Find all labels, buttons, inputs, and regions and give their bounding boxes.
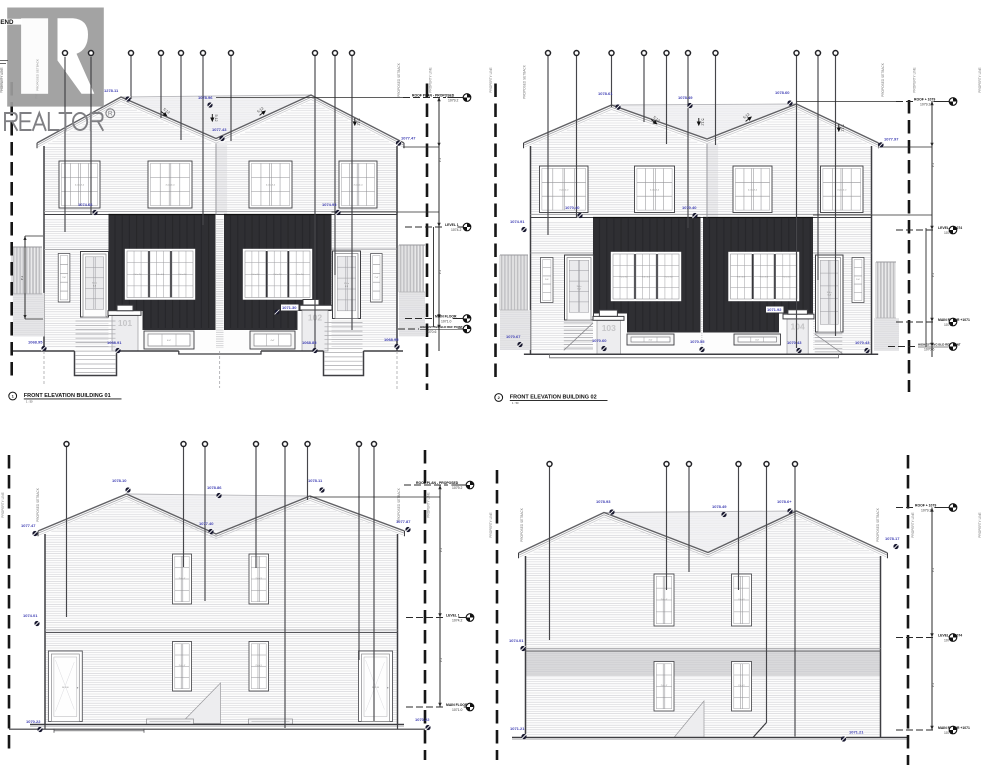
svg-text:9'-0 x 4'-6: 9'-0 x 4'-6 <box>760 276 768 278</box>
svg-text:HIGHEST AVG BLD REF POINT: HIGHEST AVG BLD REF POINT <box>420 325 463 329</box>
svg-text:4'-0 x 4'-0: 4'-0 x 4'-0 <box>266 185 276 187</box>
svg-text:1 : 50: 1 : 50 <box>512 401 519 405</box>
svg-text:LEGEND: LEGEND <box>0 19 14 26</box>
svg-text:9'-0 x 4'-6: 9'-0 x 4'-6 <box>134 274 142 276</box>
svg-text:PROPOSED SETBACK: PROPOSED SETBACK <box>36 59 40 91</box>
svg-text:2'x6': 2'x6' <box>375 277 379 279</box>
svg-text:4'x2': 4'x2' <box>167 340 172 342</box>
svg-text:PROPOSED SETBACK: PROPOSED SETBACK <box>520 507 524 542</box>
svg-text:1071.0: 1071.0 <box>441 320 451 324</box>
svg-text:PROPOSED SETBACK: PROPOSED SETBACK <box>881 62 885 97</box>
svg-text:1078.11: 1078.11 <box>308 478 323 483</box>
svg-text:1 : 50: 1 : 50 <box>26 400 33 404</box>
svg-text:9'-0 x 4'-6: 9'-0 x 4'-6 <box>619 276 627 278</box>
svg-text:1079.2: 1079.2 <box>452 486 462 490</box>
svg-text:1070.67: 1070.67 <box>506 334 521 339</box>
svg-text:ROOF PLAN - PROPOSED: ROOF PLAN - PROPOSED <box>412 93 455 97</box>
svg-text:1070.22: 1070.22 <box>415 717 430 722</box>
svg-text:2'-6 x 5': 2'-6 x 5' <box>256 578 263 580</box>
svg-text:1077.47: 1077.47 <box>401 136 416 141</box>
svg-text:9'-1: 9'-1 <box>931 162 935 167</box>
svg-text:1074.66: 1074.66 <box>78 202 93 207</box>
svg-text:9'-1: 9'-1 <box>439 547 443 552</box>
svg-text:LEVEL 1: LEVEL 1 <box>445 223 459 227</box>
svg-text:3'-0 x: 3'-0 x <box>577 286 582 288</box>
svg-text:1077.87: 1077.87 <box>396 519 411 524</box>
svg-text:2'-6 x 5': 2'-6 x 5' <box>179 665 186 667</box>
svg-text:1078.10: 1078.10 <box>112 478 127 483</box>
svg-text:2'x6': 2'x6' <box>545 279 549 281</box>
svg-text:9'-1: 9'-1 <box>438 157 442 162</box>
svg-text:ROOF + 1079: ROOF + 1079 <box>915 503 936 507</box>
svg-text:2'-6 x 5': 2'-6 x 5' <box>661 685 668 687</box>
svg-text:2'-6 x 5': 2'-6 x 5' <box>256 665 263 667</box>
svg-text:PROPERTY LINE: PROPERTY LINE <box>489 512 493 537</box>
svg-text:1074.2: 1074.2 <box>451 228 461 232</box>
svg-text:1079.2: 1079.2 <box>920 103 930 107</box>
svg-text:MAIN FLOOR: MAIN FLOOR <box>446 703 468 707</box>
svg-text:LEVEL 1: LEVEL 1 <box>446 613 460 617</box>
svg-text:1070.22: 1070.22 <box>26 719 41 724</box>
svg-text:4'-0 x 4'-0: 4'-0 x 4'-0 <box>748 189 758 191</box>
svg-text:1078.49: 1078.49 <box>678 95 693 100</box>
svg-text:103: 103 <box>602 323 616 333</box>
svg-text:1071.30: 1071.30 <box>282 305 297 310</box>
svg-text:4'-0 x 4'-0: 4'-0 x 4'-0 <box>559 189 569 191</box>
svg-text:9'-0 x 4'-6: 9'-0 x 4'-6 <box>782 276 790 278</box>
svg-text:PROPERTY LINE: PROPERTY LINE <box>429 67 433 92</box>
svg-text:9'-0 x 4'-6: 9'-0 x 4'-6 <box>156 274 164 276</box>
svg-text:1071.21: 1071.21 <box>510 726 525 731</box>
svg-text:9'-1: 9'-1 <box>931 567 935 572</box>
svg-text:1079.2: 1079.2 <box>921 509 931 513</box>
svg-text:PROPOSED SETBACK: PROPOSED SETBACK <box>397 487 401 522</box>
svg-text:1071.92: 1071.92 <box>767 307 782 312</box>
svg-text:1070.6: 1070.6 <box>426 330 436 334</box>
svg-text:1068.95: 1068.95 <box>28 340 43 345</box>
svg-text:1278.11: 1278.11 <box>104 88 119 93</box>
svg-text:1078.17: 1078.17 <box>885 536 900 541</box>
svg-text:1068.95: 1068.95 <box>384 337 399 342</box>
svg-text:2'-6 x 5': 2'-6 x 5' <box>738 685 745 687</box>
svg-text:1070.40: 1070.40 <box>682 205 697 210</box>
svg-text:3'-0 x: 3'-0 x <box>92 283 97 285</box>
svg-text:1077.43: 1077.43 <box>212 127 227 132</box>
svg-text:1070.6: 1070.6 <box>924 348 934 352</box>
svg-text:9'-0 x 4'-6: 9'-0 x 4'-6 <box>296 274 304 276</box>
svg-text:9'-0 x 4'-6: 9'-0 x 4'-6 <box>642 276 650 278</box>
svg-text:4'-0 x 4'-0: 4'-0 x 4'-0 <box>650 189 660 191</box>
svg-text:2'-6 x 5': 2'-6 x 5' <box>661 599 668 601</box>
svg-text:1077.40: 1077.40 <box>199 521 214 526</box>
svg-text:4'-0 x 4'-0: 4'-0 x 4'-0 <box>75 185 85 187</box>
svg-text:5:12: 5:12 <box>214 115 218 122</box>
svg-text:1070.60: 1070.60 <box>592 338 607 343</box>
svg-text:FRONT ELEVATION BUILDING 01: FRONT ELEVATION BUILDING 01 <box>24 393 111 399</box>
svg-text:PROPERTY LINE: PROPERTY LINE <box>1 492 5 517</box>
svg-text:1068.91: 1068.91 <box>107 340 122 345</box>
svg-text:9'-1: 9'-1 <box>20 275 24 280</box>
svg-text:4'x2': 4'x2' <box>755 340 760 342</box>
svg-text:2'x6': 2'x6' <box>856 279 860 281</box>
svg-text:5:12: 5:12 <box>701 119 705 126</box>
svg-text:1070.40: 1070.40 <box>565 205 580 210</box>
svg-text:9'-1: 9'-1 <box>931 682 935 687</box>
svg-text:1078.60: 1078.60 <box>775 90 790 95</box>
svg-text:36 X 80: 36 X 80 <box>372 687 380 689</box>
svg-text:PROPOSED SETBACK: PROPOSED SETBACK <box>36 487 40 522</box>
svg-text:1070.55: 1070.55 <box>690 339 705 344</box>
svg-text:4'x2': 4'x2' <box>271 340 276 342</box>
svg-text:1074.2: 1074.2 <box>452 619 462 623</box>
svg-text:PROPERTY LINE: PROPERTY LINE <box>427 492 431 517</box>
svg-text:3'-0 x: 3'-0 x <box>827 292 832 294</box>
svg-text:9'-1: 9'-1 <box>931 272 935 277</box>
svg-text:5:12: 5:12 <box>357 119 361 126</box>
svg-text:9'-0 x 4'-6: 9'-0 x 4'-6 <box>737 276 745 278</box>
svg-text:1068.85: 1068.85 <box>302 340 317 345</box>
svg-text:FRONT ELEVATION BUILDING 02: FRONT ELEVATION BUILDING 02 <box>510 395 597 401</box>
svg-text:ROOF PLAN - PROPOSED: ROOF PLAN - PROPOSED <box>416 481 459 485</box>
svg-text:101: 101 <box>118 318 132 328</box>
svg-text:1078.96: 1078.96 <box>198 95 213 100</box>
svg-text:9'-0 x 4'-6: 9'-0 x 4'-6 <box>664 276 672 278</box>
svg-text:9'-0 x 4'-6: 9'-0 x 4'-6 <box>251 274 259 276</box>
svg-text:1078.61: 1078.61 <box>598 91 613 96</box>
svg-text:1071.21: 1071.21 <box>849 730 864 735</box>
svg-text:1078.93: 1078.93 <box>596 499 611 504</box>
svg-text:PROPOSED SETBACK: PROPOSED SETBACK <box>397 62 401 97</box>
svg-text:3'-0 x: 3'-0 x <box>344 283 349 285</box>
svg-text:4'-0 x 4'-0: 4'-0 x 4'-0 <box>837 189 847 191</box>
svg-text:2'x6': 2'x6' <box>62 277 66 279</box>
svg-text:1078.6+: 1078.6+ <box>777 499 792 504</box>
svg-text:4'-0 x 4'-0: 4'-0 x 4'-0 <box>166 185 176 187</box>
svg-text:1078.49: 1078.49 <box>712 504 727 509</box>
svg-text:PROPERTY LINE: PROPERTY LINE <box>911 512 915 537</box>
svg-text:1079.2: 1079.2 <box>448 99 458 103</box>
svg-text:9'-1: 9'-1 <box>438 269 442 274</box>
svg-text:1074.01: 1074.01 <box>509 638 524 643</box>
svg-text:5:12: 5:12 <box>841 125 845 132</box>
svg-text:2'-6 x 5': 2'-6 x 5' <box>738 599 745 601</box>
svg-text:1074.91: 1074.91 <box>510 219 525 224</box>
svg-text:9'-0 x 4'-6: 9'-0 x 4'-6 <box>178 274 186 276</box>
svg-text:1077.47: 1077.47 <box>21 523 36 528</box>
svg-text:1077.97: 1077.97 <box>884 137 899 142</box>
svg-text:4'x2': 4'x2' <box>649 340 654 342</box>
svg-text:PROPOSED SETBACK: PROPOSED SETBACK <box>876 507 880 542</box>
svg-text:9'-1: 9'-1 <box>439 657 443 662</box>
svg-text:PROPERTY LINE: PROPERTY LINE <box>0 69 4 91</box>
svg-text:PROPOSED SETBACK: PROPOSED SETBACK <box>523 64 527 99</box>
svg-text:104: 104 <box>791 321 805 331</box>
svg-text:1070.43: 1070.43 <box>787 340 802 345</box>
svg-text:R: R <box>108 111 113 118</box>
svg-text:36 X 80: 36 X 80 <box>62 687 70 689</box>
svg-text:9'-0 x 4'-6: 9'-0 x 4'-6 <box>273 274 281 276</box>
svg-text:PROPERTY LINE: PROPERTY LINE <box>978 67 982 92</box>
svg-text:1074.01: 1074.01 <box>23 613 38 618</box>
svg-text:1078.86: 1078.86 <box>207 485 222 490</box>
svg-text:1070.43: 1070.43 <box>855 340 870 345</box>
svg-text:MAIN FLOOR: MAIN FLOOR <box>435 314 457 318</box>
svg-text:PROPERTY LINE: PROPERTY LINE <box>978 512 982 537</box>
svg-text:4'-0 x 4'-0: 4'-0 x 4'-0 <box>354 185 364 187</box>
svg-text:PROPERTY LINE: PROPERTY LINE <box>489 67 493 92</box>
svg-text:PROPERTY LINE: PROPERTY LINE <box>913 67 917 92</box>
svg-text:ROOF + 1079: ROOF + 1079 <box>914 97 935 101</box>
svg-text:2'-6 x 5': 2'-6 x 5' <box>179 578 186 580</box>
svg-text:1071.0: 1071.0 <box>452 708 462 712</box>
svg-text:1074.93: 1074.93 <box>322 202 337 207</box>
